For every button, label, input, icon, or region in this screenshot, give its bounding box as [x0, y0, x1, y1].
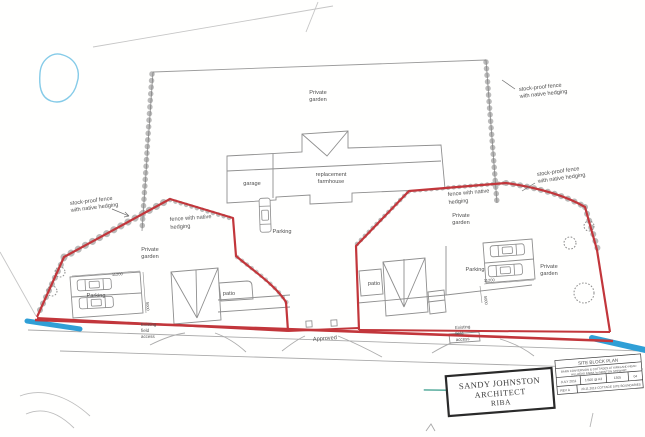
architect-riba: RIBA [491, 397, 512, 408]
stray-line [306, 2, 318, 32]
site-plan-page: Private garden garage replacement farmho… [0, 0, 645, 437]
label-existing-access-left: Existing field access [141, 322, 157, 339]
field-curve [26, 411, 74, 428]
label-stockproof-right-2: stock-proof fence with native hedging [536, 165, 586, 185]
left-drive-lines [218, 295, 290, 312]
label-garage: garage [243, 181, 260, 187]
right-bay-divider [485, 259, 534, 263]
tree [564, 237, 576, 249]
label-private-garden-top: garden [309, 97, 326, 103]
label-patio-left: patio [223, 291, 235, 297]
stray-line [93, 6, 333, 47]
label-fence-hedging-right-l1: fence with native [448, 188, 490, 198]
label-existing-access-right-l3: access [456, 336, 471, 342]
sheet-number: 04 [633, 374, 637, 378]
survey-lines [0, 2, 593, 431]
label-existing-access-right-l1: Existing [455, 324, 471, 330]
label-existing-access-left-l3: access [141, 334, 155, 339]
hedge-row [142, 74, 152, 230]
caret-mark [426, 424, 435, 431]
dim-depth-right: 5000 [483, 296, 489, 306]
label-private-garden-far-right: garden [540, 271, 557, 277]
car [77, 278, 112, 291]
bellmouth-arc [338, 336, 382, 357]
farmhouse-footprint [227, 131, 445, 204]
car [259, 198, 271, 232]
label-patio-right: patio [368, 281, 380, 287]
label-existing-access-left-l2: field [141, 328, 150, 333]
hedge-row [506, 183, 585, 207]
label-approved: Approved [313, 335, 337, 343]
label-fence-hedging-left-l2: hedging [170, 224, 190, 231]
bellmouth-arc [282, 336, 305, 351]
label-farmhouse: replacement [316, 172, 347, 178]
label-fence-hedging-right: fence with native hedging [448, 188, 491, 206]
tree [574, 283, 594, 303]
gate-posts [306, 320, 337, 327]
label-parking-farmhouse: Parking [273, 229, 292, 235]
plot-boundary-top [153, 60, 486, 72]
right-plot-red-bottom [359, 330, 610, 332]
car [490, 244, 525, 257]
field-boundary-line [0, 252, 36, 316]
label-existing-access-left-l1: Existing [141, 322, 157, 327]
tick-mark [590, 413, 593, 427]
revision: REV A [560, 388, 571, 393]
pond-outline [40, 54, 79, 102]
label-private-garden-right: garden [452, 220, 469, 226]
dimension-texts: 11200 5000 11200 5000 [112, 271, 496, 312]
label-farmhouse: farmhouse [318, 179, 344, 185]
leader-arrow-left [112, 209, 129, 217]
trees [47, 221, 594, 303]
leader-top-right [502, 80, 515, 89]
left-plot-red-boundary [37, 199, 288, 331]
title-block-leader [424, 388, 447, 392]
label-stockproof-top-right: stock-proof fence with native hedging [518, 82, 568, 100]
hedge-row [486, 62, 497, 203]
gate-post [331, 320, 337, 326]
label-fence-hedging-right-l2: hedging [448, 198, 468, 206]
label-private-garden-left: garden [141, 254, 158, 260]
label-existing-access-right-l2: field [455, 331, 464, 337]
label-private-garden-top: Private [309, 90, 326, 96]
gate-post [306, 321, 312, 327]
label-parking-left: Parking [87, 293, 106, 299]
label-private-garden-left: Private [141, 247, 158, 253]
job-number: 1305 [614, 375, 622, 380]
label-parking-right: Parking [466, 267, 485, 273]
right-porch-steps [428, 290, 446, 314]
farmhouse-building [227, 131, 445, 204]
dim-width-left: 11200 [112, 271, 124, 277]
label-fence-hedging-left-l1: fence with native [170, 214, 212, 223]
red-boundaries [35, 183, 613, 341]
dim-depth-left: 5000 [145, 302, 151, 312]
label-private-garden-right: Private [452, 213, 469, 219]
label-stockproof-left: stock-proof fence with native hedging [69, 195, 119, 214]
bellmouth-arc [215, 333, 246, 352]
label-fence-hedging-left: fence with native hedging [170, 214, 213, 231]
site-plan-drawing: Private garden garage replacement farmho… [0, 0, 645, 437]
car [488, 264, 523, 277]
label-private-garden-far-right: Private [540, 264, 557, 270]
dim-width-right: 11200 [484, 277, 496, 283]
